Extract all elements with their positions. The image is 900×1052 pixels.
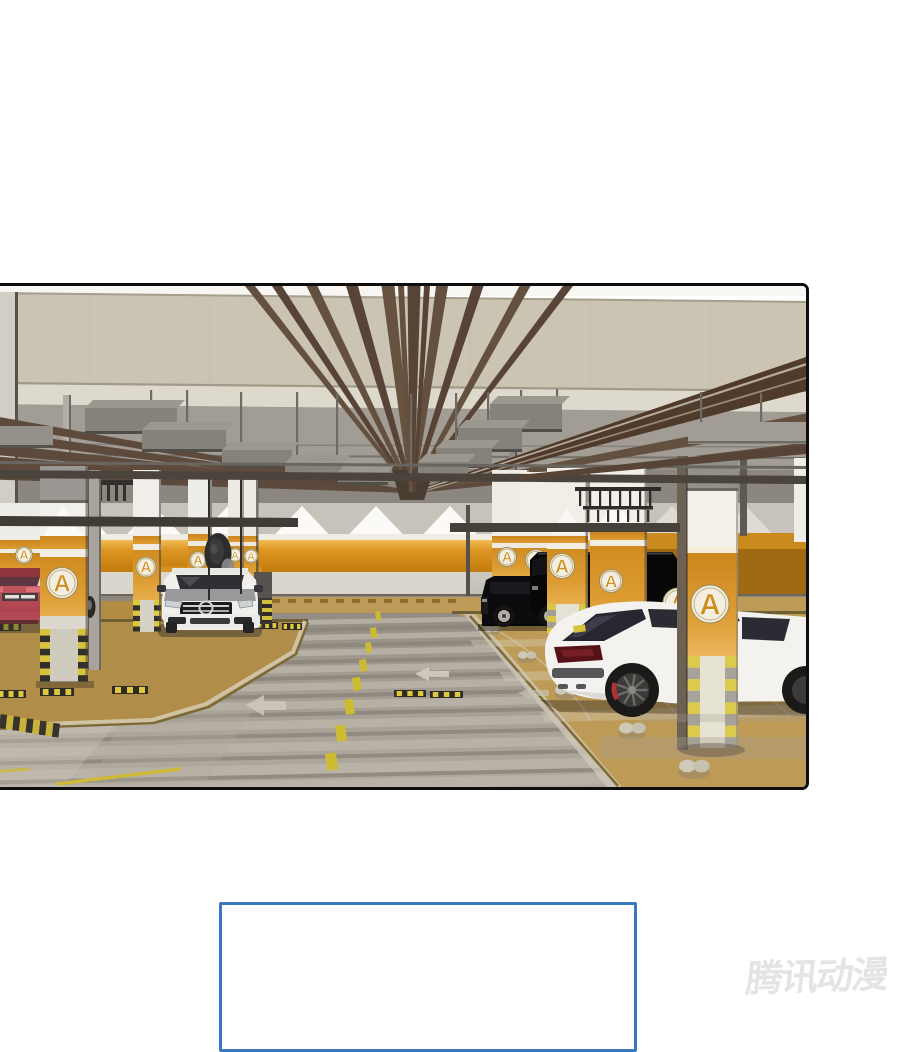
svg-text:A: A: [193, 553, 203, 568]
svg-text:A: A: [231, 550, 239, 562]
svg-text:A: A: [140, 560, 151, 577]
svg-text:A: A: [247, 551, 255, 563]
svg-text:A: A: [605, 571, 618, 591]
svg-text:A: A: [53, 571, 70, 598]
svg-text:A: A: [555, 556, 569, 578]
svg-text:A: A: [502, 550, 513, 566]
svg-text:A: A: [19, 548, 29, 563]
svg-text:A: A: [699, 589, 720, 622]
